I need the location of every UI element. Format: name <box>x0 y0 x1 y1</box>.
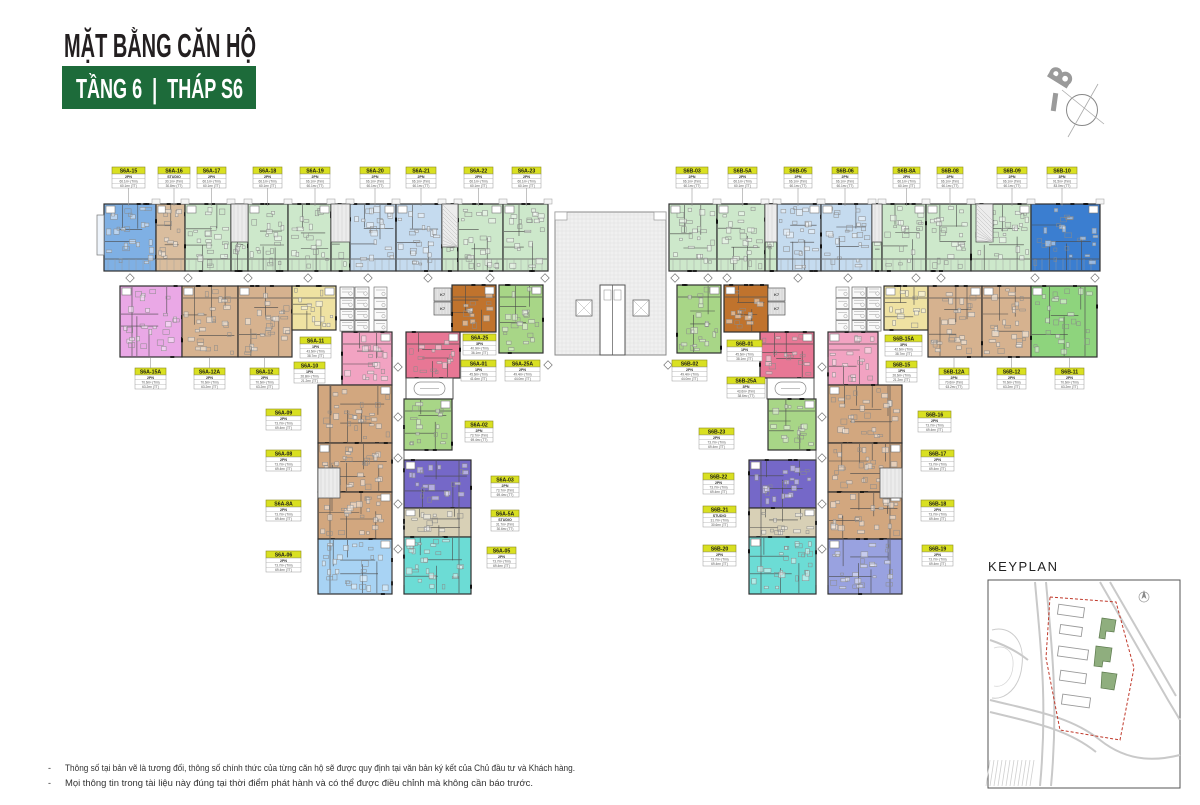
svg-text:73.7m² (Tim): 73.7m² (Tim) <box>470 433 488 437</box>
svg-text:2PN: 2PN <box>125 175 132 179</box>
svg-text:S6B-25A: S6B-25A <box>735 378 757 384</box>
svg-text:49.4m² (Tim): 49.4m² (Tim) <box>513 372 531 376</box>
svg-text:66.1m² (Tim): 66.1m² (Tim) <box>897 179 915 183</box>
svg-text:31.7m² (Tim): 31.7m² (Tim) <box>710 518 728 522</box>
svg-text:60.1m² (TT): 60.1m² (TT) <box>367 184 384 188</box>
svg-text:38.7m² (TT): 38.7m² (TT) <box>307 354 324 358</box>
svg-text:S6B-08: S6B-08 <box>941 168 959 174</box>
svg-text:69.4m² (TT): 69.4m² (TT) <box>471 438 488 442</box>
svg-text:73.7m² (Tim): 73.7m² (Tim) <box>707 440 725 444</box>
svg-text:2PN: 2PN <box>713 436 720 440</box>
svg-text:63.2m² (TT): 63.2m² (TT) <box>946 385 963 389</box>
svg-text:73.7m² (Tim): 73.7m² (Tim) <box>928 462 946 466</box>
svg-text:2PN: 2PN <box>498 555 505 559</box>
svg-text:S6B-01: S6B-01 <box>736 341 754 347</box>
svg-text:S6B-8A: S6B-8A <box>897 168 916 174</box>
svg-text:60.1m² (TT): 60.1m² (TT) <box>413 184 430 188</box>
svg-text:Thông số tại bản vẽ là tương đ: Thông số tại bản vẽ là tương đối, thông … <box>65 763 575 773</box>
svg-text:49.4m² (Tim): 49.4m² (Tim) <box>680 372 698 376</box>
svg-text:30.6m² (TT): 30.6m² (TT) <box>497 527 514 531</box>
svg-text:S6A-23: S6A-23 <box>518 168 536 174</box>
svg-text:S6A-12: S6A-12 <box>256 369 274 375</box>
svg-text:69.4m² (TT): 69.4m² (TT) <box>711 562 728 566</box>
svg-text:2PN: 2PN <box>795 175 802 179</box>
svg-text:73.7m² (Tim): 73.7m² (Tim) <box>709 485 727 489</box>
svg-text:KEYPLAN: KEYPLAN <box>988 559 1058 574</box>
svg-text:TẦNG 6 | THÁP S6: TẦNG 6 | THÁP S6 <box>76 73 243 104</box>
svg-text:2PN: 2PN <box>208 175 215 179</box>
svg-text:73.7m² (Tim): 73.7m² (Tim) <box>274 512 292 516</box>
svg-text:73.7m² (Tim): 73.7m² (Tim) <box>274 462 292 466</box>
svg-text:2PN: 2PN <box>903 175 910 179</box>
svg-text:21.2m² (TT): 21.2m² (TT) <box>301 379 318 383</box>
svg-text:S6B-15: S6B-15 <box>893 362 911 368</box>
svg-text:60.1m² (TT): 60.1m² (TT) <box>734 184 751 188</box>
svg-text:3PN: 3PN <box>743 385 750 389</box>
svg-text:26.6m² (Tim): 26.6m² (Tim) <box>892 373 910 377</box>
svg-text:30.1m² (Tim): 30.1m² (Tim) <box>165 179 183 183</box>
svg-text:S6A-17: S6A-17 <box>203 168 221 174</box>
svg-text:1PN: 1PN <box>312 345 319 349</box>
svg-text:60.1m² (TT): 60.1m² (TT) <box>898 184 915 188</box>
svg-text:63.2m² (TT): 63.2m² (TT) <box>142 385 159 389</box>
svg-text:S6A-15: S6A-15 <box>120 168 138 174</box>
svg-text:41.6m² (TT): 41.6m² (TT) <box>470 377 487 381</box>
svg-text:66.1m² (Tim): 66.1m² (Tim) <box>119 179 137 183</box>
svg-text:2PN: 2PN <box>934 458 941 462</box>
svg-text:S6B-15A: S6B-15A <box>893 336 915 342</box>
svg-text:3PN: 3PN <box>1059 175 1066 179</box>
svg-text:73.7m² (Tim): 73.7m² (Tim) <box>492 559 510 563</box>
svg-text:2PN: 2PN <box>372 175 379 179</box>
svg-text:73.7m² (Tim): 73.7m² (Tim) <box>274 563 292 567</box>
svg-text:2PN: 2PN <box>312 175 319 179</box>
svg-text:38.1m² (TT): 38.1m² (TT) <box>736 357 753 361</box>
svg-text:S6A-10: S6A-10 <box>301 363 319 369</box>
svg-text:91.5m² (Tim): 91.5m² (Tim) <box>1053 179 1071 183</box>
svg-text:60.1m² (TT): 60.1m² (TT) <box>942 184 959 188</box>
svg-text:S6A-12A: S6A-12A <box>199 369 221 375</box>
svg-text:42.6m² (Tim): 42.6m² (Tim) <box>894 347 912 351</box>
svg-text:S6A-20: S6A-20 <box>366 168 384 174</box>
svg-text:S6A-02: S6A-02 <box>470 422 488 428</box>
svg-text:38.7m² (TT): 38.7m² (TT) <box>895 352 912 356</box>
svg-text:S6A-25: S6A-25 <box>471 335 489 341</box>
svg-text:66.1m² (Tim): 66.1m² (Tim) <box>258 179 276 183</box>
svg-text:2PN: 2PN <box>206 376 213 380</box>
svg-text:2PN: 2PN <box>476 429 483 433</box>
svg-text:30.6m² (TT): 30.6m² (TT) <box>711 523 728 527</box>
svg-text:69.4m² (TT): 69.4m² (TT) <box>275 426 292 430</box>
svg-text:2PN: 2PN <box>280 559 287 563</box>
svg-text:60.1m² (TT): 60.1m² (TT) <box>790 184 807 188</box>
svg-text:2PN: 2PN <box>519 368 526 372</box>
svg-text:73.7m² (Tim): 73.7m² (Tim) <box>274 421 292 425</box>
svg-text:70.6m² (Tim): 70.6m² (Tim) <box>255 380 273 384</box>
svg-text:60.1m² (TT): 60.1m² (TT) <box>307 184 324 188</box>
svg-text:S6B-09: S6B-09 <box>1003 168 1021 174</box>
svg-text:2PN: 2PN <box>280 508 287 512</box>
svg-text:63.2m² (TT): 63.2m² (TT) <box>1061 385 1078 389</box>
svg-text:S6B-10: S6B-10 <box>1053 168 1071 174</box>
svg-text:66.1m² (Tim): 66.1m² (Tim) <box>733 179 751 183</box>
svg-text:2PN: 2PN <box>1009 175 1016 179</box>
svg-text:2PN: 2PN <box>951 376 958 380</box>
svg-text:2PN: 2PN <box>715 481 722 485</box>
svg-text:69.4m² (TT): 69.4m² (TT) <box>929 517 946 521</box>
svg-text:S6B-21: S6B-21 <box>711 507 729 513</box>
svg-text:STUDIO: STUDIO <box>713 514 727 518</box>
svg-text:2PN: 2PN <box>689 175 696 179</box>
svg-text:43.6m² (Tim): 43.6m² (Tim) <box>306 349 324 353</box>
svg-text:S6B-5A: S6B-5A <box>733 168 752 174</box>
svg-text:1PN: 1PN <box>898 369 905 373</box>
svg-text:63.2m² (TT): 63.2m² (TT) <box>256 385 273 389</box>
svg-text:S6A-15A: S6A-15A <box>140 369 162 375</box>
svg-text:63.2m² (TT): 63.2m² (TT) <box>1003 385 1020 389</box>
svg-text:S6A-19: S6A-19 <box>306 168 324 174</box>
svg-text:69.4m² (TT): 69.4m² (TT) <box>275 467 292 471</box>
svg-text:STUDIO: STUDIO <box>167 175 181 179</box>
svg-text:73.7m² (Tim): 73.7m² (Tim) <box>710 557 728 561</box>
svg-text:S6B-23: S6B-23 <box>708 429 726 435</box>
svg-text:66.1m² (Tim): 66.1m² (Tim) <box>1003 179 1021 183</box>
svg-text:S6A-25A: S6A-25A <box>512 361 534 367</box>
svg-text:70.6m² (Tim): 70.6m² (Tim) <box>1002 380 1020 384</box>
svg-text:66.1m² (Tim): 66.1m² (Tim) <box>366 179 384 183</box>
svg-text:69.4m² (TT): 69.4m² (TT) <box>275 517 292 521</box>
svg-text:1PN: 1PN <box>306 370 313 374</box>
svg-text:2PN: 2PN <box>280 417 287 421</box>
svg-text:S6B-06: S6B-06 <box>836 168 854 174</box>
svg-text:S6A-06: S6A-06 <box>275 552 293 558</box>
svg-text:43.6m² (Tim): 43.6m² (Tim) <box>737 389 755 393</box>
svg-text:69.4m² (TT): 69.4m² (TT) <box>275 568 292 572</box>
svg-text:60.1m² (TT): 60.1m² (TT) <box>1004 184 1021 188</box>
svg-text:2PN: 2PN <box>934 553 941 557</box>
svg-text:36.1m² (TT): 36.1m² (TT) <box>471 351 488 355</box>
svg-text:2PN: 2PN <box>686 368 693 372</box>
svg-text:S6B-12A: S6B-12A <box>943 369 965 375</box>
svg-text:S6B-16: S6B-16 <box>926 412 944 418</box>
svg-text:2PN: 2PN <box>931 419 938 423</box>
svg-text:S6A-08: S6A-08 <box>275 451 293 457</box>
svg-text:K7: K7 <box>440 292 446 297</box>
svg-text:2PN: 2PN <box>947 175 954 179</box>
svg-text:2PN: 2PN <box>934 508 941 512</box>
svg-text:69.4m² (TT): 69.4m² (TT) <box>497 493 514 497</box>
svg-text:83.0m² (TT): 83.0m² (TT) <box>1054 184 1071 188</box>
svg-text:66.1m² (Tim): 66.1m² (Tim) <box>306 179 324 183</box>
svg-text:S6A-16: S6A-16 <box>165 168 183 174</box>
svg-text:66.1m² (Tim): 66.1m² (Tim) <box>789 179 807 183</box>
svg-text:S6A-22: S6A-22 <box>470 168 488 174</box>
svg-text:60.1m² (TT): 60.1m² (TT) <box>837 184 854 188</box>
svg-text:S6A-5A: S6A-5A <box>496 511 515 517</box>
svg-text:2PN: 2PN <box>475 175 482 179</box>
svg-text:60.1m² (TT): 60.1m² (TT) <box>259 184 276 188</box>
svg-text:31.7m² (Tim): 31.7m² (Tim) <box>496 522 514 526</box>
svg-text:66.1m² (Tim): 66.1m² (Tim) <box>941 179 959 183</box>
svg-text:38.6m² (TT): 38.6m² (TT) <box>738 394 755 398</box>
svg-text:60.1m² (TT): 60.1m² (TT) <box>518 184 535 188</box>
svg-text:45.6m² (Tim): 45.6m² (Tim) <box>469 372 487 376</box>
svg-text:S6B-02: S6B-02 <box>681 361 699 367</box>
svg-text:1PN: 1PN <box>475 368 482 372</box>
svg-text:73.7m² (Tim): 73.7m² (Tim) <box>928 557 946 561</box>
svg-text:S6A-01: S6A-01 <box>470 361 488 367</box>
svg-text:-: - <box>48 778 51 788</box>
svg-text:S6B-17: S6B-17 <box>929 451 947 457</box>
svg-text:60.1m² (TT): 60.1m² (TT) <box>684 184 701 188</box>
svg-text:63.2m² (TT): 63.2m² (TT) <box>201 385 218 389</box>
svg-text:69.4m² (TT): 69.4m² (TT) <box>708 445 725 449</box>
svg-text:2PN: 2PN <box>739 175 746 179</box>
svg-text:69.4m² (TT): 69.4m² (TT) <box>929 467 946 471</box>
svg-text:73.7m² (Tim): 73.7m² (Tim) <box>925 423 943 427</box>
svg-text:69.4m² (TT): 69.4m² (TT) <box>929 562 946 566</box>
svg-text:2PN: 2PN <box>418 175 425 179</box>
svg-text:-: - <box>48 763 51 773</box>
svg-text:70.6m² (Tim): 70.6m² (Tim) <box>200 380 218 384</box>
svg-text:S6A-11: S6A-11 <box>307 338 324 344</box>
svg-text:44.0m² (TT): 44.0m² (TT) <box>681 377 698 381</box>
svg-text:2PN: 2PN <box>1066 376 1073 380</box>
svg-text:S6B-22: S6B-22 <box>710 474 728 480</box>
svg-text:S6B-12: S6B-12 <box>1003 369 1021 375</box>
svg-text:Mọi thông tin trong tài liệu n: Mọi thông tin trong tài liệu này đúng tạ… <box>65 778 533 788</box>
svg-text:69.4m² (TT): 69.4m² (TT) <box>493 564 510 568</box>
svg-text:66.1m² (Tim): 66.1m² (Tim) <box>683 179 701 183</box>
svg-text:S6A-21: S6A-21 <box>412 168 430 174</box>
svg-text:70.6m² (Tim): 70.6m² (Tim) <box>945 380 963 384</box>
svg-text:S6B-19: S6B-19 <box>929 546 947 552</box>
svg-text:2PN: 2PN <box>280 458 287 462</box>
svg-text:3PN: 3PN <box>900 343 907 347</box>
svg-text:69.4m² (TT): 69.4m² (TT) <box>926 428 943 432</box>
svg-text:73.7m² (Tim): 73.7m² (Tim) <box>928 512 946 516</box>
svg-text:S6A-09: S6A-09 <box>275 410 293 416</box>
svg-text:66.1m² (Tim): 66.1m² (Tim) <box>412 179 430 183</box>
svg-text:2PN: 2PN <box>502 484 509 488</box>
svg-text:2PN: 2PN <box>1008 376 1015 380</box>
svg-text:S6A-03: S6A-03 <box>496 477 514 483</box>
svg-text:2PN: 2PN <box>842 175 849 179</box>
svg-text:21.2m² (TT): 21.2m² (TT) <box>893 378 910 382</box>
svg-text:2PN: 2PN <box>264 175 271 179</box>
svg-text:60.1m² (TT): 60.1m² (TT) <box>203 184 220 188</box>
svg-text:2PN: 2PN <box>261 376 268 380</box>
svg-text:30.8m² (TT): 30.8m² (TT) <box>166 184 183 188</box>
svg-text:66.1m² (Tim): 66.1m² (Tim) <box>517 179 535 183</box>
svg-text:2PN: 2PN <box>147 376 154 380</box>
svg-text:S6A-18: S6A-18 <box>259 168 277 174</box>
svg-text:26.8m² (Tim): 26.8m² (Tim) <box>300 374 318 378</box>
svg-text:66.1m² (Tim): 66.1m² (Tim) <box>836 179 854 183</box>
svg-text:70.6m² (Tim): 70.6m² (Tim) <box>141 380 159 384</box>
svg-text:60.1m² (TT): 60.1m² (TT) <box>470 184 487 188</box>
svg-text:2PN: 2PN <box>523 175 530 179</box>
svg-text:1PN: 1PN <box>741 348 748 352</box>
svg-text:K7: K7 <box>440 306 446 311</box>
svg-text:S6B-11: S6B-11 <box>1061 369 1078 375</box>
svg-text:K7: K7 <box>774 292 780 297</box>
svg-text:66.1m² (Tim): 66.1m² (Tim) <box>202 179 220 183</box>
svg-text:K7: K7 <box>774 306 780 311</box>
svg-text:45.6m² (Tim): 45.6m² (Tim) <box>735 352 753 356</box>
svg-text:S6B-05: S6B-05 <box>789 168 807 174</box>
svg-text:40.0m² (Tim): 40.0m² (Tim) <box>470 346 488 350</box>
svg-text:S6A-8A: S6A-8A <box>274 501 293 507</box>
svg-text:STUDIO: STUDIO <box>498 518 512 522</box>
svg-text:2PN: 2PN <box>716 553 723 557</box>
svg-text:44.0m² (TT): 44.0m² (TT) <box>514 377 531 381</box>
svg-text:S6B-03: S6B-03 <box>683 168 701 174</box>
svg-text:S6B-18: S6B-18 <box>929 501 947 507</box>
svg-text:70.6m² (Tim): 70.6m² (Tim) <box>1060 380 1078 384</box>
svg-text:66.1m² (Tim): 66.1m² (Tim) <box>469 179 487 183</box>
svg-text:S6A-05: S6A-05 <box>493 548 511 554</box>
svg-text:MẶT BẰNG CĂN HỘ: MẶT BẰNG CĂN HỘ <box>64 26 256 64</box>
svg-text:S6B-20: S6B-20 <box>711 546 729 552</box>
svg-text:69.4m² (TT): 69.4m² (TT) <box>710 490 727 494</box>
svg-text:3PN: 3PN <box>476 342 483 346</box>
svg-text:60.1m² (TT): 60.1m² (TT) <box>120 184 137 188</box>
svg-text:73.7m² (Tim): 73.7m² (Tim) <box>496 488 514 492</box>
